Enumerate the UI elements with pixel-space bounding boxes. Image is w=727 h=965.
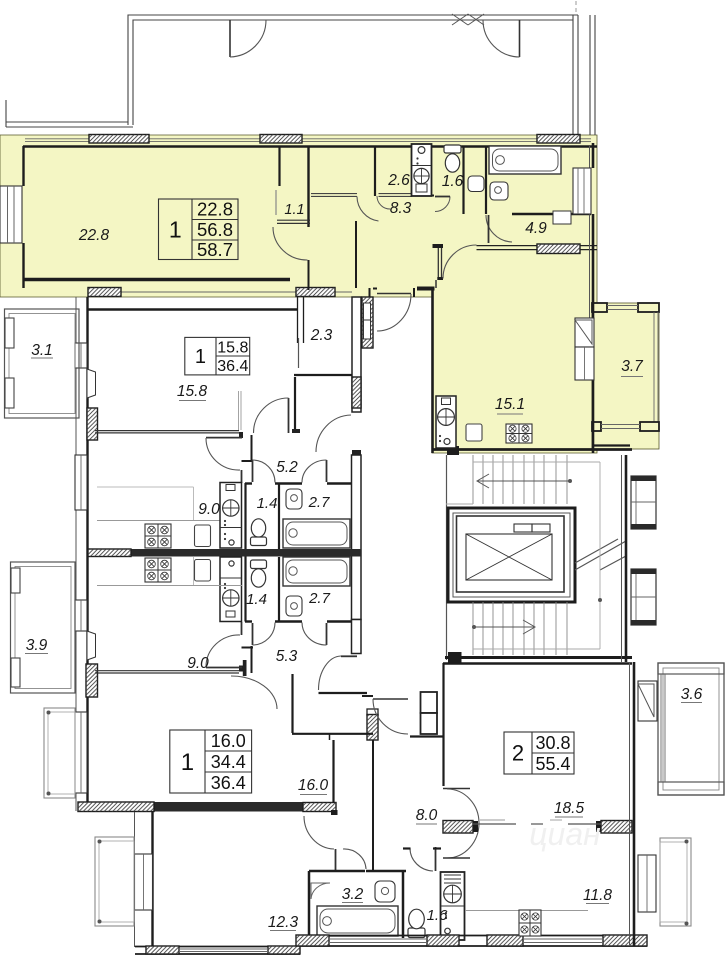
svg-text:1.1: 1.1 (284, 202, 304, 218)
svg-text:22.8: 22.8 (197, 199, 233, 220)
svg-text:55.4: 55.4 (535, 754, 570, 774)
svg-text:1: 1 (195, 346, 206, 368)
svg-text:1: 1 (181, 749, 194, 776)
svg-text:34.4: 34.4 (211, 752, 246, 772)
svg-text:11.8: 11.8 (583, 887, 612, 904)
svg-text:2: 2 (512, 741, 524, 766)
svg-text:1: 1 (169, 216, 182, 242)
svg-text:1.4: 1.4 (246, 591, 267, 608)
svg-text:3.1: 3.1 (31, 342, 53, 359)
svg-text:2.3: 2.3 (310, 327, 333, 344)
svg-text:3.2: 3.2 (342, 886, 364, 903)
svg-text:36.4: 36.4 (211, 773, 246, 793)
svg-text:4.9: 4.9 (525, 220, 547, 237)
svg-text:16.0: 16.0 (211, 731, 246, 751)
svg-text:1.6: 1.6 (427, 907, 449, 924)
svg-text:16.0: 16.0 (298, 777, 329, 794)
svg-text:3.6: 3.6 (681, 686, 703, 703)
svg-text:3.9: 3.9 (26, 637, 48, 654)
svg-text:15.8: 15.8 (217, 339, 248, 356)
svg-text:2.6: 2.6 (387, 172, 410, 189)
svg-text:8.3: 8.3 (390, 200, 412, 217)
svg-text:2.7: 2.7 (308, 494, 331, 511)
svg-text:1.4: 1.4 (257, 495, 278, 512)
svg-text:5.3: 5.3 (276, 648, 298, 665)
svg-text:8.0: 8.0 (416, 807, 438, 824)
svg-text:9.0: 9.0 (198, 501, 220, 518)
svg-text:22.8: 22.8 (78, 227, 110, 244)
svg-text:15.8: 15.8 (177, 383, 208, 400)
svg-text:30.8: 30.8 (535, 733, 570, 753)
svg-text:18.5: 18.5 (554, 800, 585, 817)
svg-text:3.7: 3.7 (621, 358, 644, 375)
svg-text:58.7: 58.7 (197, 239, 233, 260)
svg-text:36.4: 36.4 (217, 358, 248, 375)
svg-text:2.7: 2.7 (308, 590, 331, 607)
svg-text:5.2: 5.2 (276, 459, 298, 476)
svg-text:56.8: 56.8 (197, 219, 233, 240)
svg-text:1.6: 1.6 (442, 173, 464, 190)
svg-text:12.3: 12.3 (268, 914, 299, 931)
svg-text:15.1: 15.1 (495, 396, 525, 413)
svg-text:циан: циан (529, 816, 601, 852)
svg-text:9.0: 9.0 (187, 655, 209, 672)
